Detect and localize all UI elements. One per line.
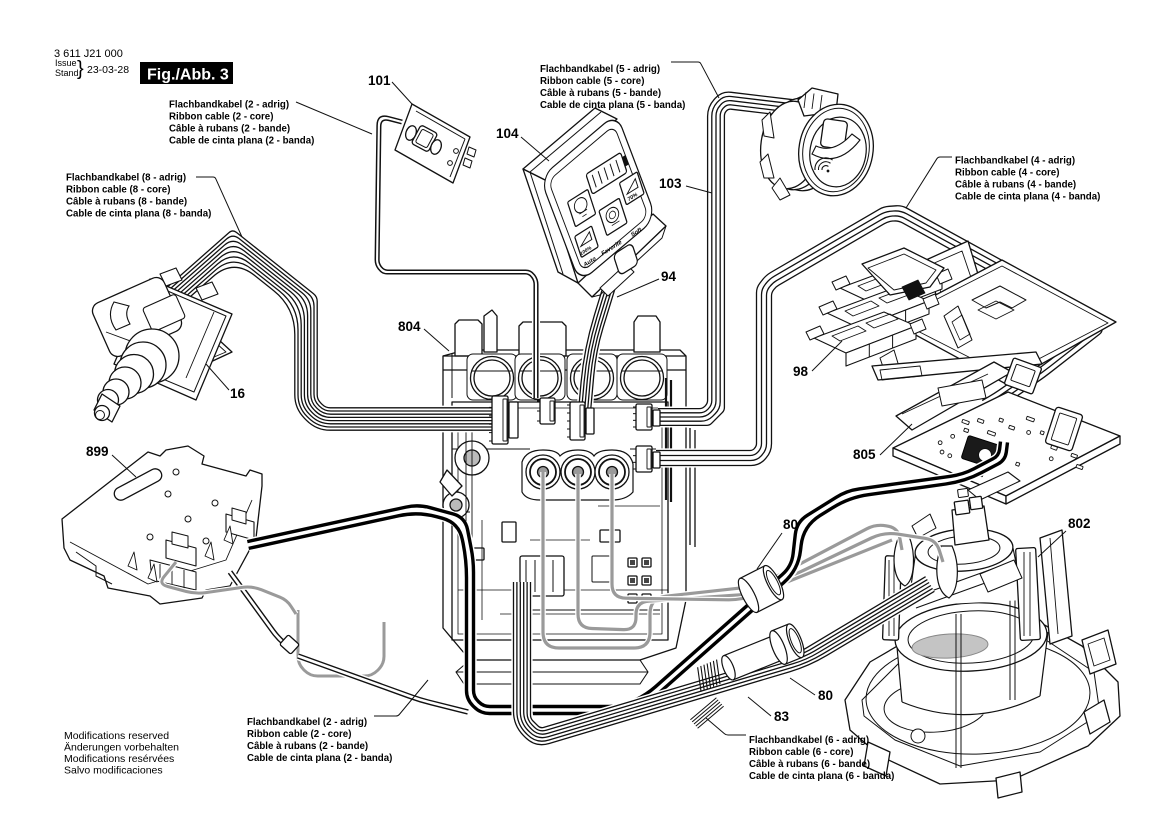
svg-text:80: 80 — [783, 517, 798, 532]
svg-text:Câble à rubans (6 - bande): Câble à rubans (6 - bande) — [749, 759, 870, 770]
svg-text:104: 104 — [496, 126, 519, 141]
svg-text:Câble à rubans (4 - bande): Câble à rubans (4 - bande) — [955, 180, 1076, 191]
svg-text:94: 94 — [661, 269, 677, 284]
svg-text:Salvo modificaciones: Salvo modificaciones — [64, 765, 163, 777]
svg-text:804: 804 — [398, 319, 421, 334]
svg-text:}: } — [77, 58, 84, 80]
svg-text:Câble à rubans (8 - bande): Câble à rubans (8 - bande) — [66, 197, 187, 208]
svg-text:Ribbon cable (2 - core): Ribbon cable (2 - core) — [247, 729, 351, 740]
svg-text:23-03-28: 23-03-28 — [87, 64, 129, 76]
svg-text:Flachbandkabel (5 - adrig): Flachbandkabel (5 - adrig) — [540, 64, 660, 75]
svg-text:Cable de cinta plana (2 - band: Cable de cinta plana (2 - banda) — [169, 136, 314, 147]
svg-text:Cable de cinta plana (5 - band: Cable de cinta plana (5 - banda) — [540, 100, 685, 111]
svg-text:Flachbandkabel (2 - adrig): Flachbandkabel (2 - adrig) — [247, 717, 367, 728]
svg-text:Cable de cinta plana (8 - band: Cable de cinta plana (8 - banda) — [66, 209, 211, 220]
svg-text:80: 80 — [818, 688, 833, 703]
svg-text:805: 805 — [853, 447, 876, 462]
svg-text:Flachbandkabel (2 - adrig): Flachbandkabel (2 - adrig) — [169, 100, 289, 111]
svg-text:Ribbon cable (4 - core): Ribbon cable (4 - core) — [955, 168, 1059, 179]
svg-text:16: 16 — [230, 386, 246, 401]
svg-text:802: 802 — [1068, 516, 1091, 531]
svg-text:Fig./Abb. 3: Fig./Abb. 3 — [147, 67, 229, 84]
svg-text:Issue: Issue — [55, 58, 77, 68]
svg-text:Stand: Stand — [55, 68, 79, 78]
svg-text:Cable de cinta plana (4 - band: Cable de cinta plana (4 - banda) — [955, 192, 1100, 203]
svg-text:Câble à rubans (5 - bande): Câble à rubans (5 - bande) — [540, 88, 661, 99]
svg-text:Flachbandkabel (4 - adrig): Flachbandkabel (4 - adrig) — [955, 156, 1075, 167]
svg-text:Cable de cinta plana (2 - band: Cable de cinta plana (2 - banda) — [247, 753, 392, 764]
svg-text:Câble à rubans (2 - bande): Câble à rubans (2 - bande) — [247, 741, 368, 752]
svg-text:Flachbandkabel (8 - adrig): Flachbandkabel (8 - adrig) — [66, 173, 186, 184]
svg-text:Ribbon cable (2 - core): Ribbon cable (2 - core) — [169, 112, 273, 123]
svg-text:101: 101 — [368, 73, 391, 88]
svg-text:899: 899 — [86, 444, 109, 459]
svg-text:Câble à rubans (2 - bande): Câble à rubans (2 - bande) — [169, 124, 290, 135]
svg-text:103: 103 — [659, 176, 682, 191]
svg-text:Modifications resérvées: Modifications resérvées — [64, 753, 174, 765]
svg-text:98: 98 — [793, 364, 809, 379]
svg-text:Flachbandkabel (6 - adrig): Flachbandkabel (6 - adrig) — [749, 735, 869, 746]
svg-text:Cable de cinta plana (6 - band: Cable de cinta plana (6 - banda) — [749, 771, 894, 782]
svg-text:83: 83 — [774, 709, 790, 724]
svg-text:Ribbon cable (5 - core): Ribbon cable (5 - core) — [540, 76, 644, 87]
svg-text:Modifications reserved: Modifications reserved — [64, 730, 169, 742]
svg-text:Ribbon cable (6 - core): Ribbon cable (6 - core) — [749, 747, 853, 758]
svg-text:Änderungen vorbehalten: Änderungen vorbehalten — [64, 742, 179, 754]
svg-text:Ribbon cable (8 - core): Ribbon cable (8 - core) — [66, 185, 170, 196]
